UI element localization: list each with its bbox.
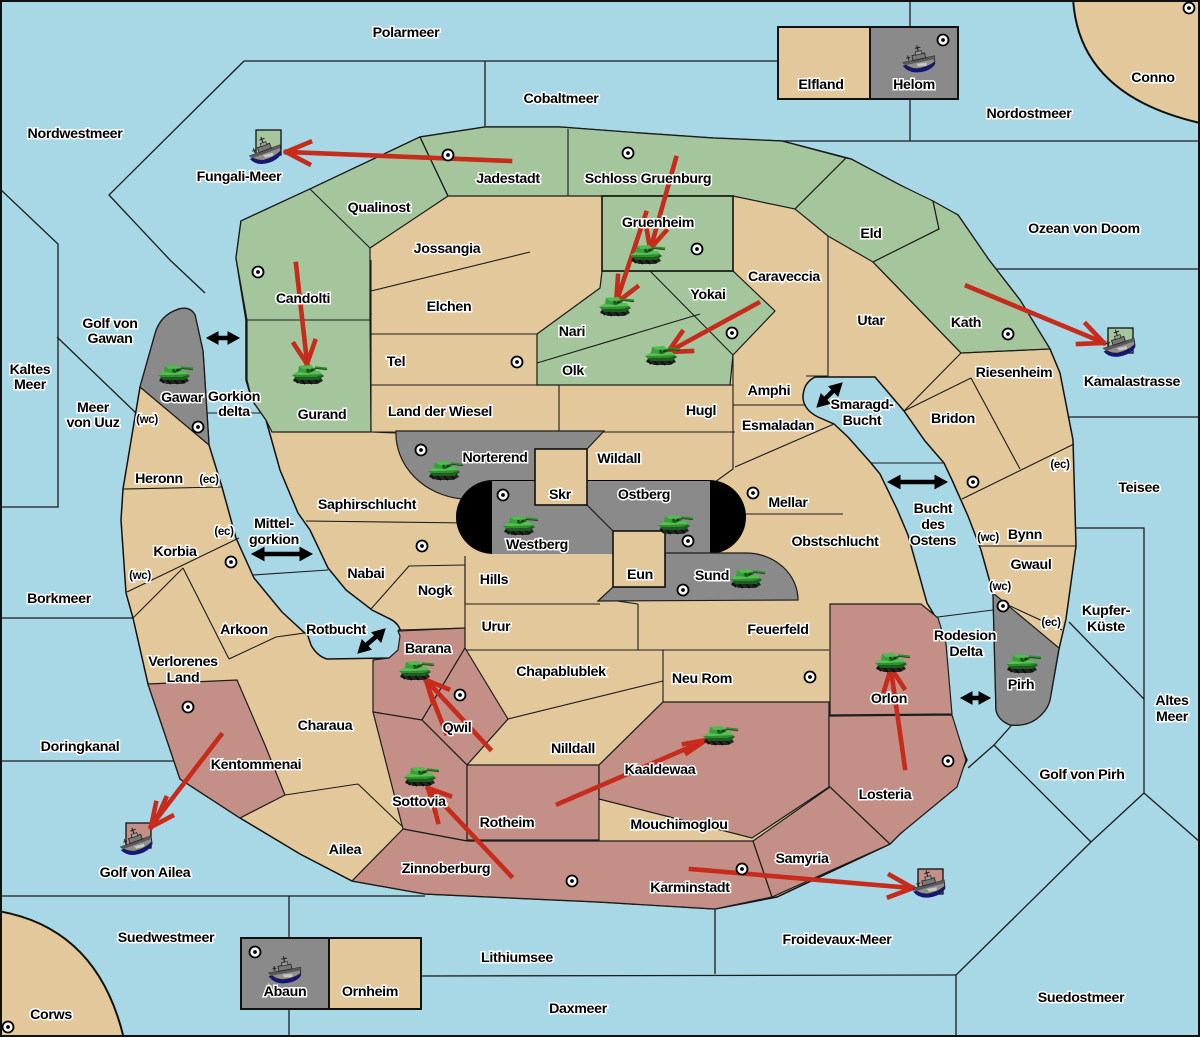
svg-text:(wc): (wc) [989, 581, 1011, 593]
svg-text:Zinnoberburg: Zinnoberburg [402, 861, 491, 877]
svg-text:Nordostmeer: Nordostmeer [987, 106, 1073, 122]
svg-text:Kupfer-: Kupfer- [1082, 603, 1131, 619]
svg-text:Hills: Hills [480, 572, 509, 588]
svg-text:Samyria: Samyria [775, 851, 829, 867]
svg-text:Qwil: Qwil [443, 720, 472, 736]
svg-text:Caraveccia: Caraveccia [748, 269, 820, 285]
svg-text:(ec): (ec) [214, 526, 234, 538]
svg-text:Lithiumsee: Lithiumsee [481, 950, 553, 966]
svg-text:Barana: Barana [405, 641, 452, 657]
svg-text:Losteria: Losteria [859, 787, 912, 803]
svg-text:Nilldall: Nilldall [551, 741, 595, 757]
svg-text:Bucht: Bucht [914, 501, 953, 517]
svg-text:Rodesion: Rodesion [934, 628, 996, 644]
svg-text:Olk: Olk [562, 363, 584, 379]
svg-text:Meer: Meer [77, 400, 110, 416]
svg-text:Land: Land [167, 670, 200, 686]
svg-text:Sund: Sund [695, 568, 729, 584]
svg-text:Hugl: Hugl [686, 403, 716, 419]
svg-text:Suedostmeer: Suedostmeer [1038, 990, 1125, 1006]
svg-text:Urur: Urur [482, 619, 512, 635]
svg-text:Suedwestmeer: Suedwestmeer [118, 930, 215, 946]
svg-text:Cobaltmeer: Cobaltmeer [523, 91, 599, 107]
svg-text:Kamalastrasse: Kamalastrasse [1084, 374, 1181, 390]
svg-text:Eld: Eld [860, 226, 881, 242]
svg-text:Korbia: Korbia [153, 544, 197, 560]
svg-text:Kaaldewaa: Kaaldewaa [625, 762, 696, 778]
svg-text:Küste: Küste [1087, 619, 1125, 635]
svg-text:Abaun: Abaun [264, 984, 307, 1000]
svg-text:Eun: Eun [627, 567, 653, 583]
svg-text:Nordwestmeer: Nordwestmeer [28, 126, 124, 142]
svg-text:Riesenheim: Riesenheim [976, 365, 1053, 381]
svg-text:Daxmeer: Daxmeer [549, 1001, 608, 1017]
svg-text:(ec): (ec) [1041, 617, 1061, 629]
svg-text:Kath: Kath [951, 315, 981, 331]
svg-text:Nogk: Nogk [418, 583, 453, 599]
svg-text:Orlon: Orlon [871, 691, 907, 707]
svg-text:Norterend: Norterend [462, 450, 527, 466]
svg-text:Mittel-: Mittel- [254, 516, 294, 532]
svg-text:Ozean von Doom: Ozean von Doom [1028, 221, 1140, 237]
svg-text:Bucht: Bucht [843, 413, 882, 429]
svg-text:Doringkanal: Doringkanal [41, 739, 120, 755]
svg-text:Arkoon: Arkoon [220, 622, 268, 638]
svg-text:Mouchimoglou: Mouchimoglou [630, 817, 727, 833]
svg-text:Mellar: Mellar [768, 495, 808, 511]
svg-text:Qualinost: Qualinost [348, 200, 411, 216]
svg-text:von Uuz: von Uuz [66, 415, 119, 431]
svg-text:Schloss Gruenburg: Schloss Gruenburg [585, 171, 712, 187]
svg-text:Froidevaux-Meer: Froidevaux-Meer [782, 932, 892, 948]
svg-text:Wildall: Wildall [597, 451, 641, 467]
svg-text:Gwaul: Gwaul [1010, 557, 1051, 573]
svg-text:Delta: Delta [949, 644, 983, 660]
svg-text:Ostens: Ostens [910, 533, 957, 549]
svg-text:Esmaladan: Esmaladan [742, 418, 814, 434]
svg-text:Nari: Nari [559, 324, 585, 340]
svg-text:Conno: Conno [1131, 70, 1175, 86]
svg-text:Sottovia: Sottovia [392, 794, 446, 810]
svg-text:Golf von Pirh: Golf von Pirh [1039, 767, 1124, 783]
svg-text:Tel: Tel [387, 354, 406, 370]
svg-text:Elfland: Elfland [798, 77, 843, 93]
svg-text:Gurand: Gurand [298, 407, 347, 423]
svg-text:Gruenheim: Gruenheim [622, 215, 694, 231]
svg-text:Elchen: Elchen [427, 299, 472, 315]
svg-text:(ec): (ec) [1050, 459, 1070, 471]
svg-text:Pirh: Pirh [1008, 677, 1034, 693]
svg-text:Borkmeer: Borkmeer [27, 591, 92, 607]
svg-text:Obstschlucht: Obstschlucht [791, 534, 879, 550]
svg-text:delta: delta [218, 404, 250, 420]
svg-text:Golf von: Golf von [82, 316, 137, 332]
svg-text:Corws: Corws [30, 1007, 72, 1023]
svg-text:Rotheim: Rotheim [480, 815, 535, 831]
svg-text:Land der Wiesel: Land der Wiesel [388, 404, 492, 420]
svg-text:Smaragd-: Smaragd- [830, 397, 894, 413]
svg-text:Bridon: Bridon [931, 411, 975, 427]
svg-text:Charaua: Charaua [298, 718, 353, 734]
svg-text:Nabai: Nabai [347, 566, 384, 582]
svg-text:Saphirschlucht: Saphirschlucht [318, 497, 417, 513]
svg-text:Westberg: Westberg [506, 537, 568, 553]
svg-text:Utar: Utar [857, 313, 885, 329]
svg-text:Helom: Helom [893, 77, 935, 93]
svg-text:(wc): (wc) [136, 414, 158, 426]
svg-text:Gawar: Gawar [161, 390, 204, 406]
svg-text:Altes: Altes [1155, 693, 1189, 709]
svg-text:Ornheim: Ornheim [342, 984, 398, 1000]
svg-text:Meer: Meer [14, 377, 47, 393]
svg-text:Teisee: Teisee [1118, 480, 1160, 496]
svg-text:Fungali-Meer: Fungali-Meer [197, 169, 282, 185]
svg-text:Chapablublek: Chapablublek [516, 664, 606, 680]
svg-text:Yokai: Yokai [690, 287, 725, 303]
svg-text:Ailea: Ailea [329, 842, 362, 858]
svg-text:(ec): (ec) [199, 474, 219, 486]
svg-text:Golf von Ailea: Golf von Ailea [100, 865, 191, 881]
svg-text:gorkion: gorkion [249, 532, 299, 548]
svg-text:Amphi: Amphi [748, 383, 791, 399]
svg-text:Meer: Meer [1156, 709, 1189, 725]
svg-text:Jossangia: Jossangia [414, 241, 481, 257]
svg-text:Gawan: Gawan [87, 331, 132, 347]
svg-text:des: des [921, 517, 945, 533]
svg-text:Polarmeer: Polarmeer [373, 25, 440, 41]
svg-text:Ostberg: Ostberg [618, 487, 670, 503]
svg-text:Gorkion: Gorkion [208, 389, 260, 405]
svg-text:Verlorenes: Verlorenes [148, 654, 218, 670]
svg-text:Candolti: Candolti [276, 291, 330, 307]
svg-text:(wc): (wc) [129, 570, 151, 582]
svg-text:Skr: Skr [549, 487, 572, 503]
svg-text:Kaltes: Kaltes [10, 362, 51, 378]
svg-text:Feuerfeld: Feuerfeld [747, 622, 808, 638]
svg-text:Karminstadt: Karminstadt [650, 880, 730, 896]
svg-text:Kentommenai: Kentommenai [211, 757, 302, 773]
svg-text:Jadestadt: Jadestadt [476, 171, 540, 187]
svg-text:Neu Rom: Neu Rom [672, 671, 732, 687]
svg-text:Rotbucht: Rotbucht [306, 622, 366, 638]
svg-text:(wc): (wc) [977, 532, 999, 544]
svg-text:Bynn: Bynn [1008, 527, 1042, 543]
svg-text:Heronn: Heronn [135, 471, 183, 487]
